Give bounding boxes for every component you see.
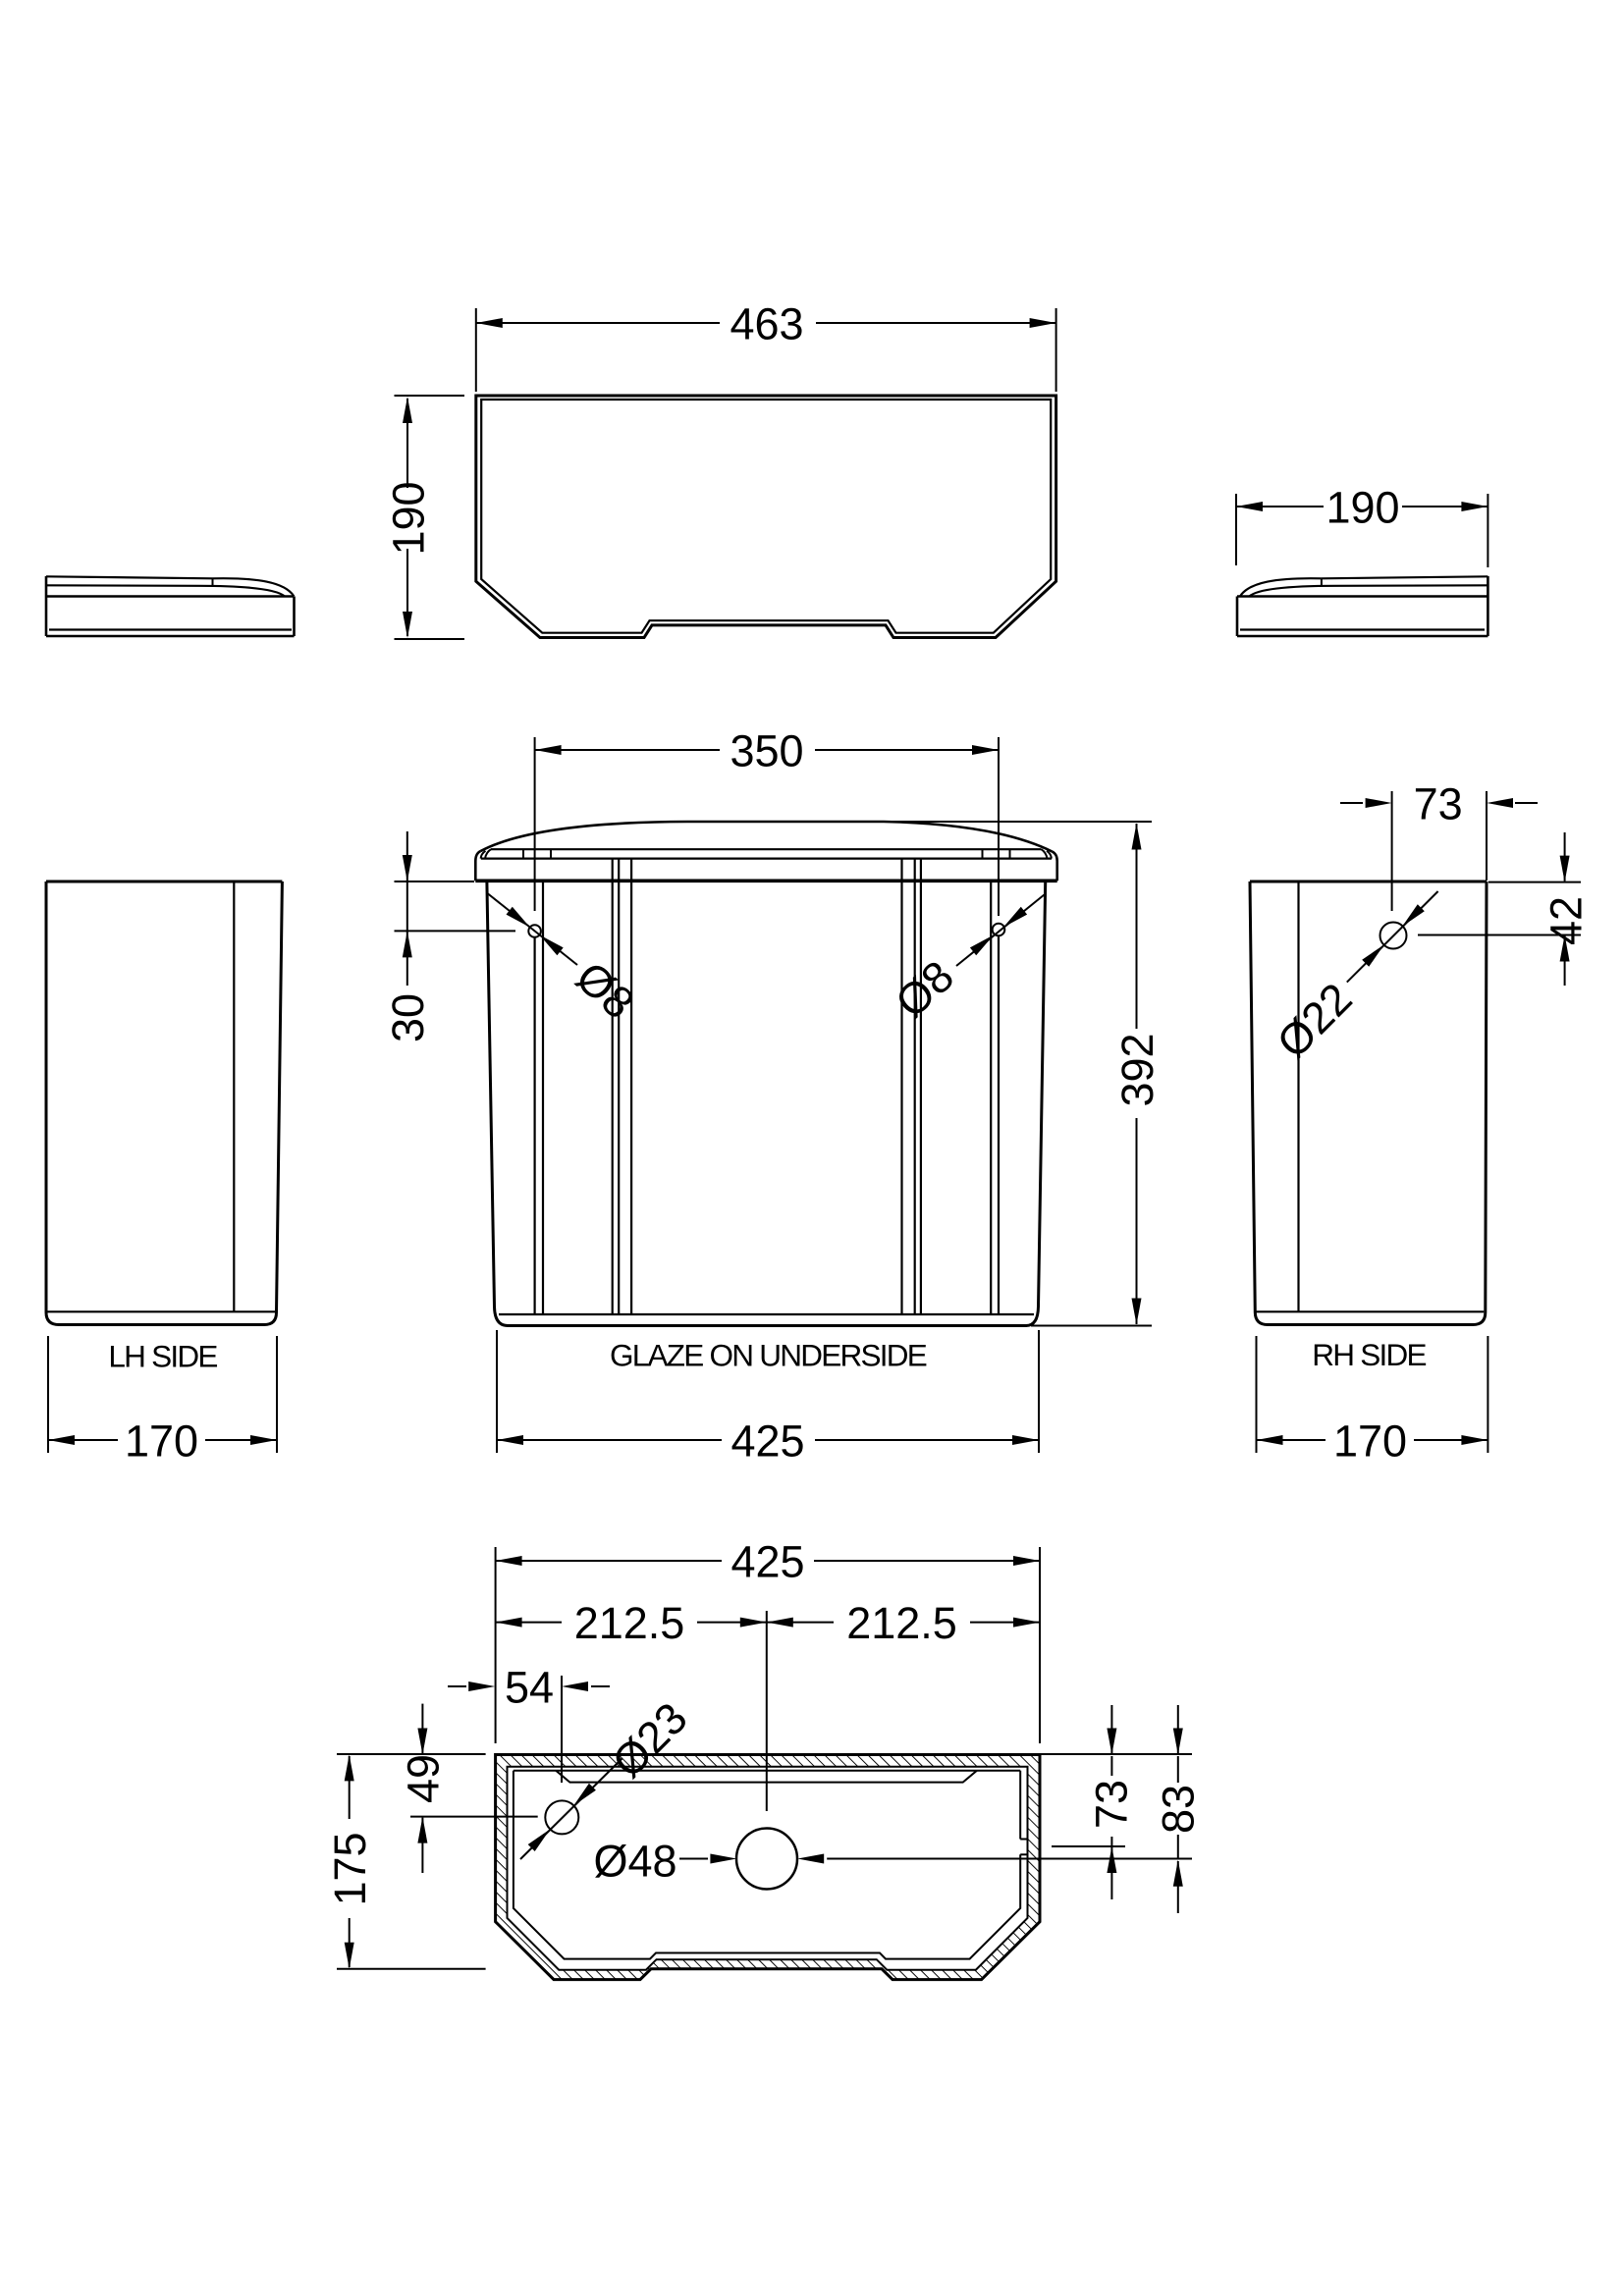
svg-text:190: 190 <box>1325 482 1399 532</box>
svg-text:392: 392 <box>1112 1033 1163 1106</box>
svg-text:49: 49 <box>399 1754 449 1803</box>
svg-text:425: 425 <box>730 1415 804 1466</box>
svg-text:212.5: 212.5 <box>574 1598 685 1648</box>
svg-text:LH SIDE: LH SIDE <box>108 1338 217 1373</box>
svg-text:212.5: 212.5 <box>846 1598 957 1648</box>
svg-text:GLAZE ON UNDERSIDE: GLAZE ON UNDERSIDE <box>610 1337 927 1372</box>
svg-text:170: 170 <box>125 1415 198 1466</box>
svg-text:350: 350 <box>730 725 803 775</box>
svg-text:83: 83 <box>1153 1785 1203 1834</box>
svg-text:42: 42 <box>1541 896 1591 945</box>
svg-text:175: 175 <box>325 1832 375 1905</box>
svg-text:425: 425 <box>730 1536 804 1586</box>
svg-text:RH SIDE: RH SIDE <box>1312 1337 1426 1372</box>
svg-text:73: 73 <box>1414 778 1463 828</box>
svg-text:Ø48: Ø48 <box>593 1836 676 1886</box>
svg-text:170: 170 <box>1333 1415 1407 1466</box>
svg-text:73: 73 <box>1086 1780 1136 1829</box>
svg-text:30: 30 <box>383 993 433 1042</box>
svg-text:190: 190 <box>383 481 433 555</box>
svg-text:54: 54 <box>505 1662 554 1712</box>
svg-text:463: 463 <box>730 298 803 348</box>
